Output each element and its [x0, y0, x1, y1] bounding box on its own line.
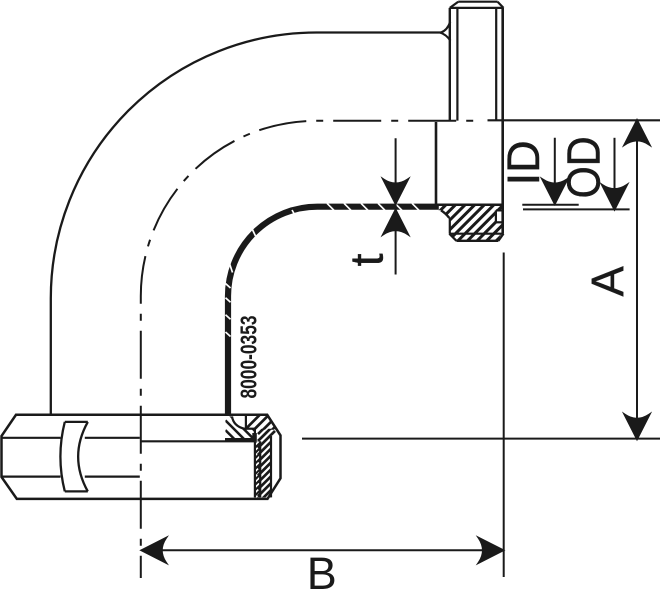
svg-text:A: A: [582, 266, 633, 297]
svg-text:B: B: [307, 548, 337, 599]
svg-text:ID: ID: [498, 140, 549, 185]
svg-text:t: t: [341, 253, 393, 266]
svg-text:8000-0353: 8000-0353: [235, 316, 261, 399]
svg-text:OD: OD: [557, 136, 609, 198]
